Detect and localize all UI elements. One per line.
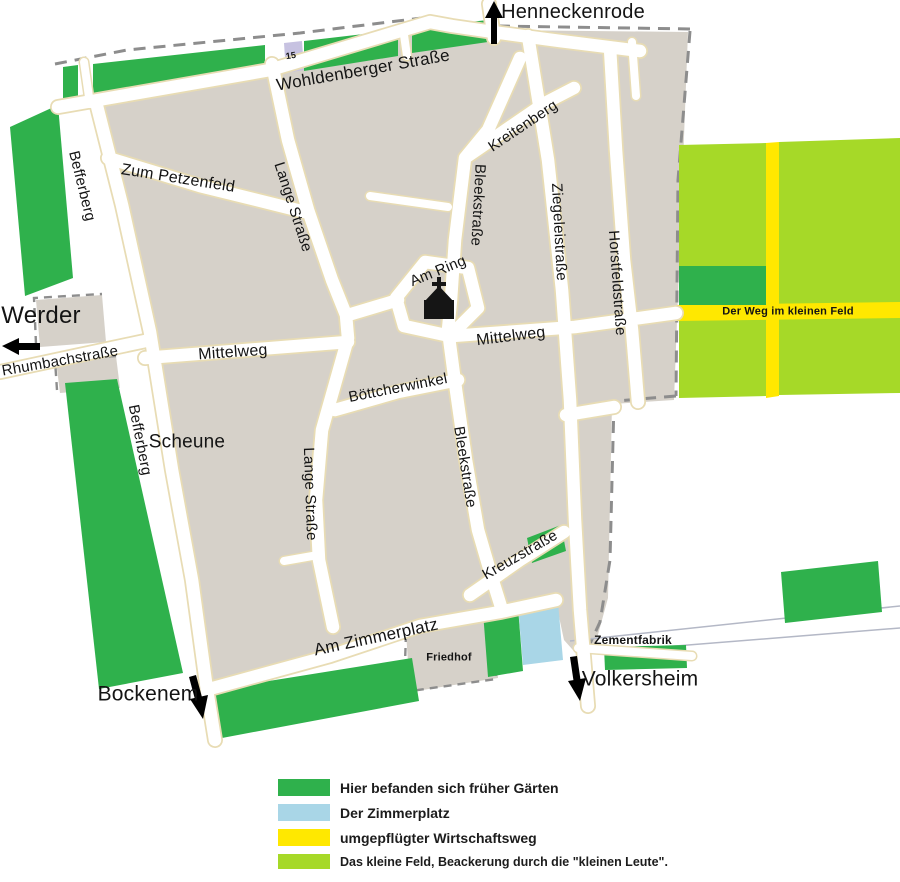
street-label-lange-strasse-south: Lange Straße bbox=[301, 447, 319, 541]
street-label-bleekstrasse-north: Bleekstraße bbox=[468, 164, 487, 247]
legend-row-zimmerplatz: Der Zimmerplatz bbox=[278, 804, 668, 821]
garden-in-feld bbox=[679, 266, 766, 305]
legend: Hier befanden sich früher Gärten Der Zim… bbox=[278, 779, 668, 877]
legend-row-wirtschaftsweg: umgepflügter Wirtschaftsweg bbox=[278, 829, 668, 846]
place-label-scheune: Scheune bbox=[149, 433, 225, 452]
arrow-werder-icon bbox=[2, 338, 40, 355]
destination-bockenem: Bockenem bbox=[98, 684, 199, 705]
garden-southeast bbox=[781, 561, 882, 623]
map-graphic bbox=[0, 0, 900, 760]
legend-row-gardens: Hier befanden sich früher Gärten bbox=[278, 779, 668, 796]
street-label-weg-im-kleinen-feld: Der Weg im kleinen Feld bbox=[722, 307, 854, 318]
legend-swatch-gardens bbox=[278, 779, 330, 796]
legend-swatch-zimmerplatz bbox=[278, 804, 330, 821]
legend-label-wirtschaftsweg: umgepflügter Wirtschaftsweg bbox=[340, 830, 537, 846]
destination-werder: Werder bbox=[1, 304, 80, 328]
legend-swatch-kleines-feld bbox=[278, 854, 330, 869]
legend-swatch-wirtschaftsweg bbox=[278, 829, 330, 846]
place-label-friedhof: Friedhof bbox=[426, 653, 472, 664]
village-map-page: Henneckenrode Wohldenberger Straße 15 Zu… bbox=[0, 0, 900, 882]
legend-label-kleines-feld: Das kleine Feld, Beackerung durch die "k… bbox=[340, 855, 668, 869]
wirtschaftsweg-vertical bbox=[766, 142, 779, 398]
legend-label-gardens: Hier befanden sich früher Gärten bbox=[340, 780, 559, 796]
destination-volkersheim: Volkersheim bbox=[582, 669, 699, 690]
destination-henneckenrode: Henneckenrode bbox=[501, 2, 645, 22]
legend-label-zimmerplatz: Der Zimmerplatz bbox=[340, 805, 450, 821]
legend-row-kleines-feld: Das kleine Feld, Beackerung durch die "k… bbox=[278, 854, 668, 869]
place-label-zementfabrik: Zementfabrik bbox=[594, 634, 672, 646]
plot-15-label: 15 bbox=[285, 51, 297, 62]
garden-west-upper bbox=[10, 105, 73, 296]
